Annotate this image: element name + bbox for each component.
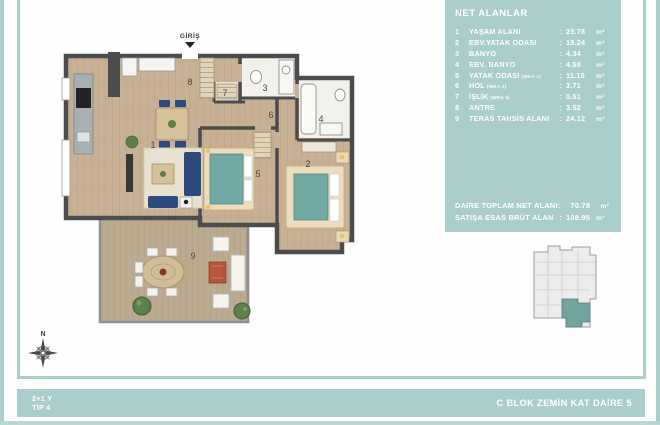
area-row-label: TERAS TAHSİS ALANI xyxy=(469,114,549,123)
area-row-value: 24.12 xyxy=(566,114,596,123)
area-row-value: 19.24 xyxy=(566,38,596,47)
area-row-value: 3.71 xyxy=(566,81,596,90)
total-gross-area-row: SATIŞA ESAS BRÜT ALAN : 108.95 m² xyxy=(455,213,612,225)
room-number: 6 xyxy=(268,110,273,120)
total-unit: m² xyxy=(596,215,612,222)
unit-type-line2: TİP 4 xyxy=(32,403,52,412)
entrance-arrow-icon xyxy=(185,42,195,48)
total-label: SATIŞA ESAS BRÜT ALAN xyxy=(455,213,556,222)
total-value: 108.95 xyxy=(566,213,596,222)
area-row-label: ANTRE xyxy=(469,103,495,112)
area-row-value: 0.51 xyxy=(566,92,596,101)
area-row-sub: (WKA 1) xyxy=(522,74,541,79)
room-number: 2 xyxy=(305,159,310,169)
colon: : xyxy=(556,103,566,112)
area-row: 3 BANYO : 4.34 m² xyxy=(455,49,612,60)
area-row: 4 EBV. BANYO : 4.58 m² xyxy=(455,60,612,71)
area-row-number: 1 xyxy=(455,27,469,36)
area-row-number: 4 xyxy=(455,60,469,69)
area-row: 6 HOL(WKA 2) : 3.71 m² xyxy=(455,81,612,92)
room-number: 4 xyxy=(318,114,323,124)
colon: : xyxy=(556,38,566,47)
colon: : xyxy=(556,27,566,36)
entrance-label: GİRİŞ xyxy=(180,32,200,40)
area-row-sub: (WKA 6) xyxy=(491,95,510,100)
area-row-unit: m² xyxy=(596,73,612,80)
inner-frame-bottom xyxy=(17,376,646,379)
area-row-label: İŞLİK xyxy=(469,92,489,101)
colon: : xyxy=(556,81,566,90)
net-areas-panel: NET ALANLAR 1 YAŞAM ALANI : 23.78 m² 2 E… xyxy=(445,0,621,232)
panel-title: NET ALANLAR xyxy=(455,8,612,19)
room-number: 5 xyxy=(255,169,260,179)
area-row-number: 7 xyxy=(455,92,469,101)
area-row-number: 2 xyxy=(455,38,469,47)
area-row-number: 5 xyxy=(455,71,469,80)
area-row-label: EBV.YATAK ODASI xyxy=(469,38,537,47)
room-number: 1 xyxy=(150,140,155,150)
area-row-unit: m² xyxy=(596,51,612,58)
key-plan xyxy=(534,246,596,327)
area-row-value: 4.34 xyxy=(566,49,596,58)
area-row-unit: m² xyxy=(596,83,612,90)
colon: : xyxy=(556,49,566,58)
area-row-value: 23.78 xyxy=(566,27,596,36)
total-label: DAİRE TOPLAM NET ALANI: xyxy=(455,201,561,210)
total-value: 70.78 xyxy=(571,201,601,210)
area-row-label: YATAK ODASI xyxy=(469,71,520,80)
area-row-unit: m² xyxy=(596,94,612,101)
area-row-sub: (WKA 2) xyxy=(487,84,506,89)
unit-location: C BLOK ZEMİN KAT DAİRE 5 xyxy=(496,398,632,408)
area-row-unit: m² xyxy=(596,40,612,47)
room-number: 7 xyxy=(222,88,227,98)
inner-frame-left xyxy=(17,0,20,379)
total-net-area-row: DAİRE TOPLAM NET ALANI: 70.78 m² xyxy=(455,201,612,213)
area-row-unit: m² xyxy=(596,62,612,69)
entrance-marker: GİRİŞ xyxy=(180,32,200,48)
inner-frame-right xyxy=(643,0,646,379)
area-row-number: 9 xyxy=(455,114,469,123)
area-row-label: BANYO xyxy=(469,49,496,58)
footer-bar: 2+1 Y TİP 4 C BLOK ZEMİN KAT DAİRE 5 xyxy=(17,389,645,417)
unit-type: 2+1 Y TİP 4 xyxy=(32,394,52,412)
terrace xyxy=(100,220,250,322)
area-row-number: 8 xyxy=(455,103,469,112)
area-row-label: HOL xyxy=(469,81,485,90)
page-edge-left xyxy=(0,0,4,425)
colon: : xyxy=(556,71,566,80)
unit-type-line1: 2+1 Y xyxy=(32,394,52,403)
area-row-number: 3 xyxy=(455,49,469,58)
area-row-unit: m² xyxy=(596,105,612,112)
area-row-value: 11.10 xyxy=(566,71,596,80)
total-unit: m² xyxy=(601,203,617,210)
column xyxy=(108,52,120,97)
area-row-value: 4.58 xyxy=(566,60,596,69)
area-row-label: YAŞAM ALANI xyxy=(469,27,521,36)
page-edge-right xyxy=(656,0,660,425)
colon: : xyxy=(556,60,566,69)
area-row: 9 TERAS TAHSİS ALANI : 24.12 m² xyxy=(455,114,612,125)
area-row-value: 3.52 xyxy=(566,103,596,112)
colon: : xyxy=(556,92,566,101)
room-number: 8 xyxy=(187,77,192,87)
compass-icon: N xyxy=(28,331,58,368)
area-row-label: EBV. BANYO xyxy=(469,60,516,69)
room-number: 9 xyxy=(190,251,195,261)
brochure-page: 1 2 3 4 5 6 7 8 9 GİRİŞ N xyxy=(0,0,660,425)
area-row-unit: m² xyxy=(596,116,612,123)
area-row-unit: m² xyxy=(596,29,612,36)
compass-north-label: N xyxy=(40,331,45,338)
area-row: 5 YATAK ODASI(WKA 1) : 11.10 m² xyxy=(455,71,612,82)
colon: : xyxy=(556,114,566,123)
room-number: 3 xyxy=(262,83,267,93)
area-row: 7 İŞLİK(WKA 6) : 0.51 m² xyxy=(455,92,612,103)
totals: DAİRE TOPLAM NET ALANI: 70.78 m² SATIŞA … xyxy=(455,201,612,225)
area-row: 8 ANTRE : 3.52 m² xyxy=(455,103,612,114)
colon: : xyxy=(556,213,566,222)
area-row-number: 6 xyxy=(455,81,469,90)
area-row: 2 EBV.YATAK ODASI : 19.24 m² xyxy=(455,38,612,49)
page-edge-bottom xyxy=(0,421,660,425)
area-row: 1 YAŞAM ALANI : 23.78 m² xyxy=(455,27,612,38)
